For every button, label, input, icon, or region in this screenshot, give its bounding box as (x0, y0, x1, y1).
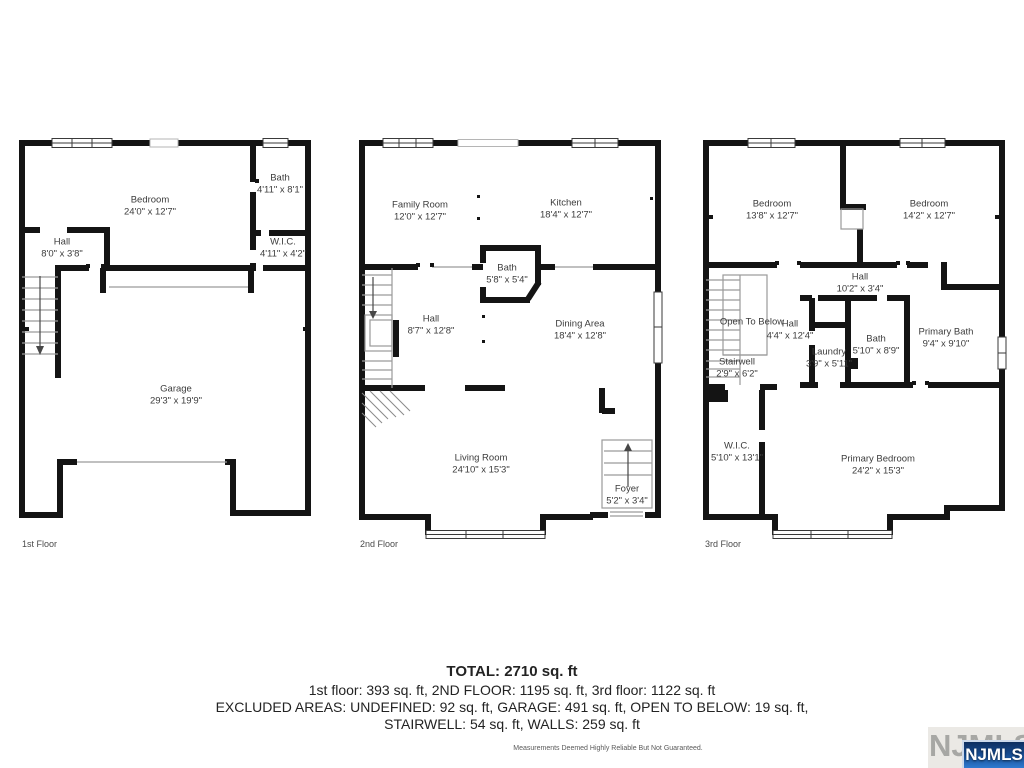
room-label-bedroom-2: Bedroom 13'8" x 12'7" (746, 199, 798, 222)
room-name: Hall (423, 314, 439, 325)
excluded-areas-line2: STAIRWELL: 54 sq. ft, WALLS: 259 sq. ft (162, 716, 862, 733)
room-dims: 18'4" x 12'8" (554, 330, 606, 342)
per-floor-areas: 1st floor: 393 sq. ft, 2ND FLOOR: 1195 s… (162, 682, 862, 699)
room-name: Bedroom (910, 199, 949, 210)
room-label-living-room: Living Room 24'10" x 15'3" (452, 453, 509, 476)
room-label-bedroom: Bedroom 24'0" x 12'7" (124, 195, 176, 218)
floor-tag-1st: 1st Floor (22, 539, 57, 549)
bedroom-closet (841, 209, 863, 229)
area-summary: TOTAL: 2710 sq. ft 1st floor: 393 sq. ft… (162, 663, 862, 733)
room-dims: 5'10" x 13'1" (711, 452, 763, 464)
room-label-primary-bath: Primary Bath 9'4" x 9'10" (919, 327, 974, 350)
room-label-family-room: Family Room 12'0" x 12'7" (392, 200, 448, 223)
room-dims: 5'8" x 5'4" (486, 274, 528, 286)
njmls-badge: NJMLS (962, 740, 1024, 768)
room-label-hall2: Hall 8'7" x 12'8" (408, 314, 455, 337)
room-label-laundry: Laundry 3'9" x 5'11" (806, 347, 852, 370)
room-label-wic-2: W.I.C. 5'10" x 13'1" (711, 441, 763, 464)
floor-tag-2nd: 2nd Floor (360, 539, 398, 549)
floor-tag-3rd: 3rd Floor (705, 539, 741, 549)
room-name: Family Room (392, 200, 448, 211)
room-name: Primary Bath (919, 327, 974, 338)
floor-plan-2nd-floor-drawing (358, 135, 663, 540)
room-name: Living Room (455, 453, 508, 464)
floor-plan-sheet: Bedroom 24'0" x 12'7" Bath 4'11" x 8'1" … (0, 0, 1024, 768)
room-dims: 13'8" x 12'7" (746, 210, 798, 222)
room-label-garage: Garage 29'3" x 19'9" (150, 384, 202, 407)
room-dims: 14'2" x 12'7" (903, 210, 955, 222)
room-name: Bedroom (753, 199, 792, 210)
room-name: Hall (782, 319, 798, 330)
room-dims: 4'4" x 12'4" (767, 330, 814, 342)
room-label-hall: Hall 8'0" x 3'8" (41, 237, 83, 260)
room-dims: 12'0" x 12'7" (392, 211, 448, 223)
room-label-primary-bedroom: Primary Bedroom 24'2" x 15'3" (841, 454, 915, 477)
room-name: Stairwell (719, 357, 755, 368)
room-label-hall4: Hall 4'4" x 12'4" (767, 319, 814, 342)
room-dims: 29'3" x 19'9" (150, 395, 202, 407)
room-dims: 4'11" x 8'1" (257, 184, 303, 196)
room-name: Bath (270, 173, 290, 184)
room-label-wic: W.I.C. 4'11" x 4'2" (260, 237, 306, 260)
room-dims: 24'10" x 15'3" (452, 464, 509, 476)
room-name: Garage (160, 384, 192, 395)
room-dims: 8'7" x 12'8" (408, 325, 455, 337)
room-dims: 18'4" x 12'7" (540, 209, 592, 221)
room-label-bedroom-3: Bedroom 14'2" x 12'7" (903, 199, 955, 222)
room-name: Laundry (812, 347, 846, 358)
room-label-hall3: Hall 10'2" x 3'4" (837, 272, 884, 295)
room-name: Bath (866, 334, 886, 345)
room-name: Kitchen (550, 198, 582, 209)
room-dims: 4'11" x 4'2" (260, 248, 306, 260)
room-label-bath3: Bath 5'10" x 8'9" (853, 334, 900, 357)
room-name: Hall (54, 237, 70, 248)
room-label-bath: Bath 4'11" x 8'1" (257, 173, 303, 196)
room-name: Bedroom (131, 195, 170, 206)
room-dims: 3'9" x 5'11" (806, 358, 852, 370)
room-name: Dining Area (555, 319, 604, 330)
room-dims: 24'2" x 15'3" (841, 465, 915, 477)
understair-hatch (362, 391, 410, 427)
room-name: Primary Bedroom (841, 454, 915, 465)
room-label-foyer: Foyer 5'2" x 3'4" (606, 484, 648, 507)
foyer-up-arrowhead (624, 443, 632, 451)
room-dims: 5'2" x 3'4" (606, 495, 648, 507)
room-label-bath2: Bath 5'8" x 5'4" (486, 263, 528, 286)
room-dims: 10'2" x 3'4" (837, 283, 884, 295)
room-label-stairwell: Stairwell 2'9" x 6'2" (716, 357, 758, 380)
room-name: W.I.C. (724, 441, 750, 452)
floor2-windows (383, 139, 662, 539)
room-dims: 2'9" x 6'2" (716, 368, 758, 380)
floor2-stairs (362, 268, 392, 388)
room-dims: 5'10" x 8'9" (853, 345, 900, 357)
room-dims: 8'0" x 3'8" (41, 248, 83, 260)
room-dims: 24'0" x 12'7" (124, 206, 176, 218)
njmls-logo: NJMLS NJMLS (928, 727, 1024, 768)
room-label-kitchen: Kitchen 18'4" x 12'7" (540, 198, 592, 221)
excluded-areas-line1: EXCLUDED AREAS: UNDEFINED: 92 sq. ft, GA… (162, 699, 862, 716)
room-dims: 9'4" x 9'10" (919, 338, 974, 350)
room-name: Bath (497, 263, 517, 274)
floor1-garage-door-line (77, 287, 248, 462)
room-name: Hall (852, 272, 868, 283)
total-area: TOTAL: 2710 sq. ft (162, 663, 862, 680)
room-name: Foyer (615, 484, 639, 495)
room-name: W.I.C. (270, 237, 296, 248)
room-label-dining-area: Dining Area 18'4" x 12'8" (554, 319, 606, 342)
wall-mass (704, 390, 728, 402)
measurement-disclaimer: Measurements Deemed Highly Reliable But … (408, 745, 808, 752)
